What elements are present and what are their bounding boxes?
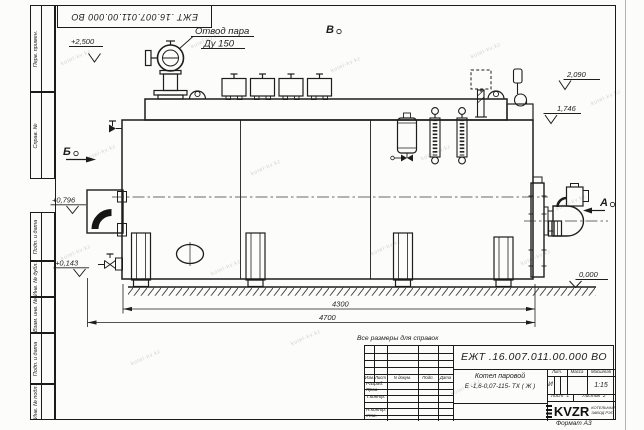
row-utv: Утв. bbox=[365, 415, 387, 422]
title-designation: ЕЖТ .16.007.011.00.000 ВО bbox=[453, 346, 615, 369]
sheet-edge-line bbox=[625, 0, 626, 430]
company-cell: KVZR КОТЕЛЬНЫЙ ЗАВОД РЭП bbox=[547, 401, 615, 421]
title-block: ЕЖТ .16.007.011.00.000 ВО Котел паровой … bbox=[364, 345, 614, 420]
margin-box-podp-data-1: Подп. и дата bbox=[30, 212, 55, 261]
margin-box-inv-dubl: Инв. № дубл. bbox=[30, 261, 55, 297]
product-name: Котел паровой bbox=[453, 371, 547, 382]
margin-box-vzam-inv: Взам. инв. № bbox=[30, 297, 55, 333]
lit-value: И bbox=[547, 376, 554, 394]
sheets-total-cell: Листов2 bbox=[573, 394, 615, 401]
massa-header: Масса bbox=[567, 369, 587, 376]
company-name: КОТЕЛЬНЫЙ ЗАВОД РЭП bbox=[591, 406, 616, 415]
product-code: Е -1,6-0,07-115- ТХ ( Ж ) bbox=[453, 382, 547, 393]
col-list: Лист bbox=[374, 374, 387, 382]
row-tkontr: Т.контр. bbox=[365, 395, 387, 402]
margin-box-podp-data-2: Подп. и дата bbox=[30, 333, 55, 384]
col-podp: Подп. bbox=[418, 374, 438, 382]
scale-header: Масштаб bbox=[587, 369, 615, 376]
lit-header: Лит. bbox=[547, 369, 567, 376]
sheet-number-cell: Лист1 bbox=[547, 394, 573, 401]
designation-flipped-box: ЕЖТ .16.007.011.00.000 ВО bbox=[57, 5, 212, 28]
format-note: Формат А3 bbox=[556, 421, 592, 428]
reference-dimensions-note: Все размеры для справок bbox=[357, 336, 438, 343]
margin-box-perv-primen: Перв. примен. bbox=[30, 5, 55, 92]
margin-box-sprav-no: Справ. № bbox=[30, 92, 55, 179]
scale-value: 1:15 bbox=[587, 376, 615, 394]
col-izm: Изм. bbox=[365, 374, 374, 382]
col-doc: N докум. bbox=[387, 374, 418, 382]
company-logo: KVZR bbox=[546, 405, 589, 418]
logo-bars-icon bbox=[546, 405, 552, 418]
margin-box-inv-podl: Инв. № подл. bbox=[30, 384, 55, 420]
drawing-sheet: kotel-kv.kz kotel-kv.kz kotel-kv.kz kote… bbox=[0, 0, 644, 430]
col-data: Дата bbox=[438, 374, 453, 382]
designation-flipped-text: ЕЖТ .16.007.011.00.000 ВО bbox=[71, 12, 198, 21]
